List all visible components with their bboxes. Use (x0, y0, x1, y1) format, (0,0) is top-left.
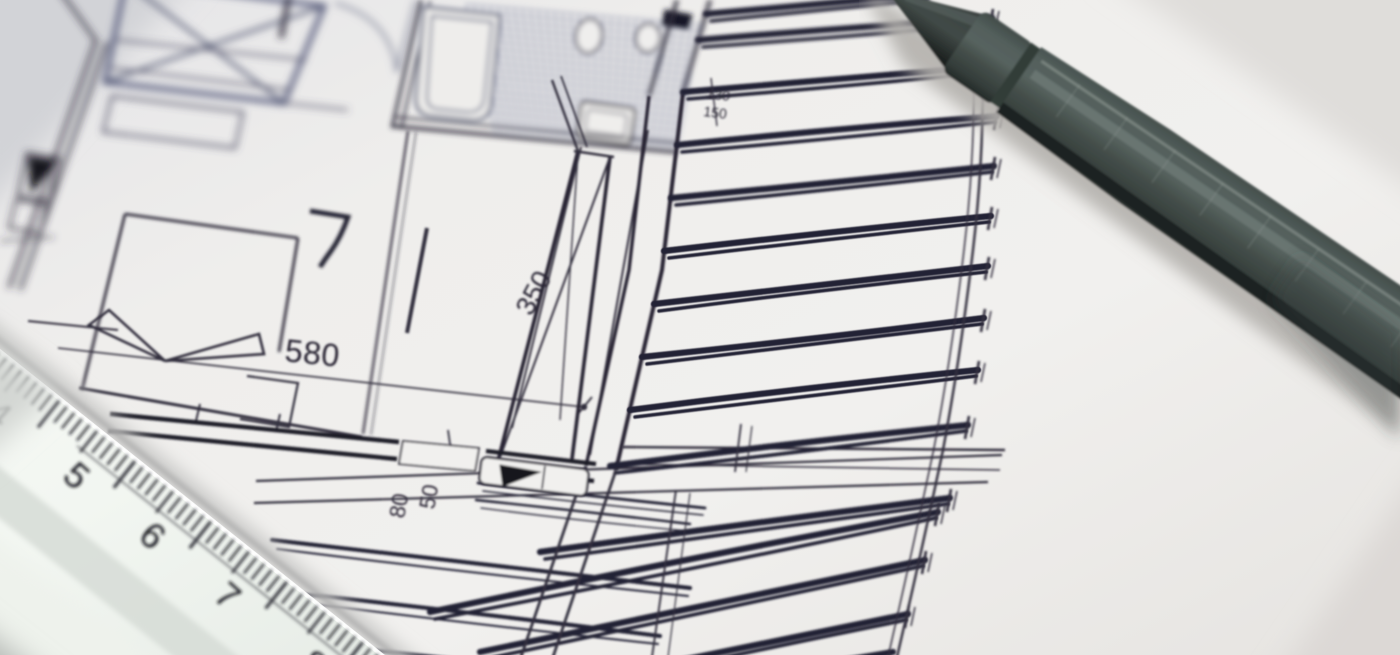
svg-text:80: 80 (384, 491, 413, 519)
svg-text:130: 130 (706, 85, 731, 104)
svg-text:580: 580 (283, 332, 341, 374)
